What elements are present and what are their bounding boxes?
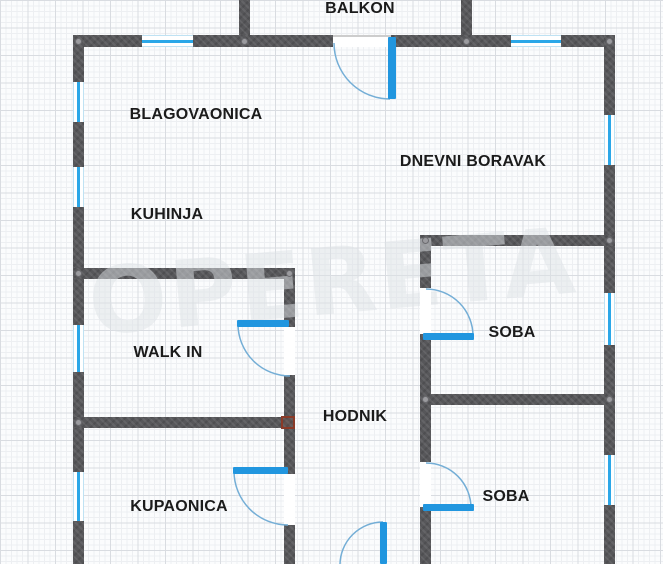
window-glass — [142, 40, 193, 43]
wall-segment — [73, 207, 84, 325]
wall-junction-dot — [286, 270, 293, 277]
wall-segment — [193, 35, 333, 47]
door-opening-bedroom2 — [420, 462, 431, 507]
door-leaf-entry — [380, 522, 387, 564]
wall-junction-dot — [422, 237, 429, 244]
wall-segment — [73, 122, 84, 167]
room-label-soba-1: SOBA — [488, 324, 535, 342]
room-label-kupaonica: KUPAONICA — [130, 498, 228, 516]
door-opening-walkin — [284, 327, 295, 375]
door-leaf-bedroom1 — [423, 333, 474, 340]
window — [604, 293, 615, 345]
window-glass — [608, 293, 611, 345]
window-glass — [608, 455, 611, 505]
wall-segment — [604, 165, 615, 293]
wall-bedroom-divider — [420, 394, 615, 405]
window — [73, 82, 84, 122]
window — [604, 455, 615, 505]
room-label-walk-in: WALK IN — [134, 344, 203, 362]
balcony-wall-right — [461, 0, 472, 35]
wall-junction-dot — [606, 237, 613, 244]
room-label-hodnik: HODNIK — [323, 408, 387, 426]
window-glass — [77, 325, 80, 372]
wall-junction-dot — [75, 38, 82, 45]
wall-junction-dot — [606, 396, 613, 403]
door-leaf-walkin — [237, 320, 289, 327]
door-leaf-bedroom2 — [423, 504, 474, 511]
window — [73, 472, 84, 521]
window — [604, 115, 615, 165]
wall-segment — [391, 35, 511, 47]
window-glass — [77, 82, 80, 122]
wall-junction-dot — [606, 38, 613, 45]
wall-hallway-left — [284, 525, 295, 564]
wall-junction-dot — [422, 396, 429, 403]
wall-segment — [604, 505, 615, 564]
selected-junction-marker — [281, 416, 295, 429]
door-opening-balcony — [333, 35, 391, 47]
window-glass — [77, 472, 80, 521]
wall-segment — [604, 35, 615, 115]
window — [142, 35, 193, 47]
room-label-dnevni-boravak: DNEVNI BORAVAK — [400, 153, 546, 171]
door-leaf-balcony — [388, 37, 396, 99]
wall-segment — [73, 521, 84, 564]
window-glass — [77, 167, 80, 207]
window — [511, 35, 561, 47]
wall-bathroom-top — [73, 417, 295, 428]
door-opening-bedroom1 — [420, 288, 431, 334]
window-glass — [511, 40, 561, 43]
wall-bedrooms-left — [420, 507, 431, 564]
floor-plan: OPERETA — [0, 0, 663, 564]
door-leaf-bathroom — [233, 467, 288, 474]
room-label-balkon: BALKON — [325, 0, 395, 18]
room-label-kuhinja: KUHINJA — [131, 206, 204, 224]
wall-junction-dot — [463, 38, 470, 45]
window — [73, 325, 84, 372]
wall-junction-dot — [241, 38, 248, 45]
door-opening-bathroom — [284, 474, 295, 525]
wall-junction-dot — [75, 419, 82, 426]
room-label-soba-2: SOBA — [482, 488, 529, 506]
room-label-blagovaonica: BLAGOVAONICA — [130, 106, 263, 124]
balcony-wall-left — [239, 0, 250, 35]
window — [73, 167, 84, 207]
window-glass — [608, 115, 611, 165]
wall-junction-dot — [75, 270, 82, 277]
